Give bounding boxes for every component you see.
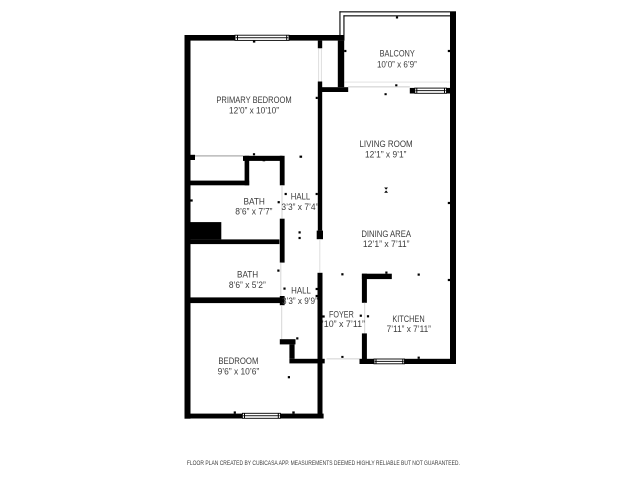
svg-text:’10” x 7’11”: ’10” x 7’11” [322,319,365,329]
svg-text:8’6” x 5’2”: 8’6” x 5’2” [229,280,266,290]
svg-text:7’11” x 7’11”: 7’11” x 7’11” [387,324,431,334]
svg-text:HALL: HALL [291,192,310,203]
svg-text:BALCONY: BALCONY [380,48,416,59]
svg-text:12’1” x 9’1”: 12’1” x 9’1” [365,150,406,160]
svg-text:LIVING ROOM: LIVING ROOM [360,139,413,150]
svg-text:FLOOR PLAN CREATED BY CUBICASA: FLOOR PLAN CREATED BY CUBICASA APP. MEAS… [187,461,460,467]
svg-text:9’6” x 10’6”: 9’6” x 10’6” [218,367,260,377]
svg-text:12’0” x 10’10”: 12’0” x 10’10” [229,105,279,115]
svg-text:BATH: BATH [237,270,258,281]
svg-text:8’6” x 7’7”: 8’6” x 7’7” [235,207,272,217]
svg-text:BEDROOM: BEDROOM [218,356,258,367]
svg-text:12’1” x 7’11”: 12’1” x 7’11” [363,239,410,249]
svg-text:3’3” x 7’4”: 3’3” x 7’4” [281,202,318,212]
svg-text:10’0” x 6’9”: 10’0” x 6’9” [377,59,417,69]
svg-text:PRIMARY BEDROOM: PRIMARY BEDROOM [216,95,291,106]
svg-text:HALL: HALL [291,286,311,297]
svg-text:3’3” x 9’9”: 3’3” x 9’9” [282,296,318,306]
